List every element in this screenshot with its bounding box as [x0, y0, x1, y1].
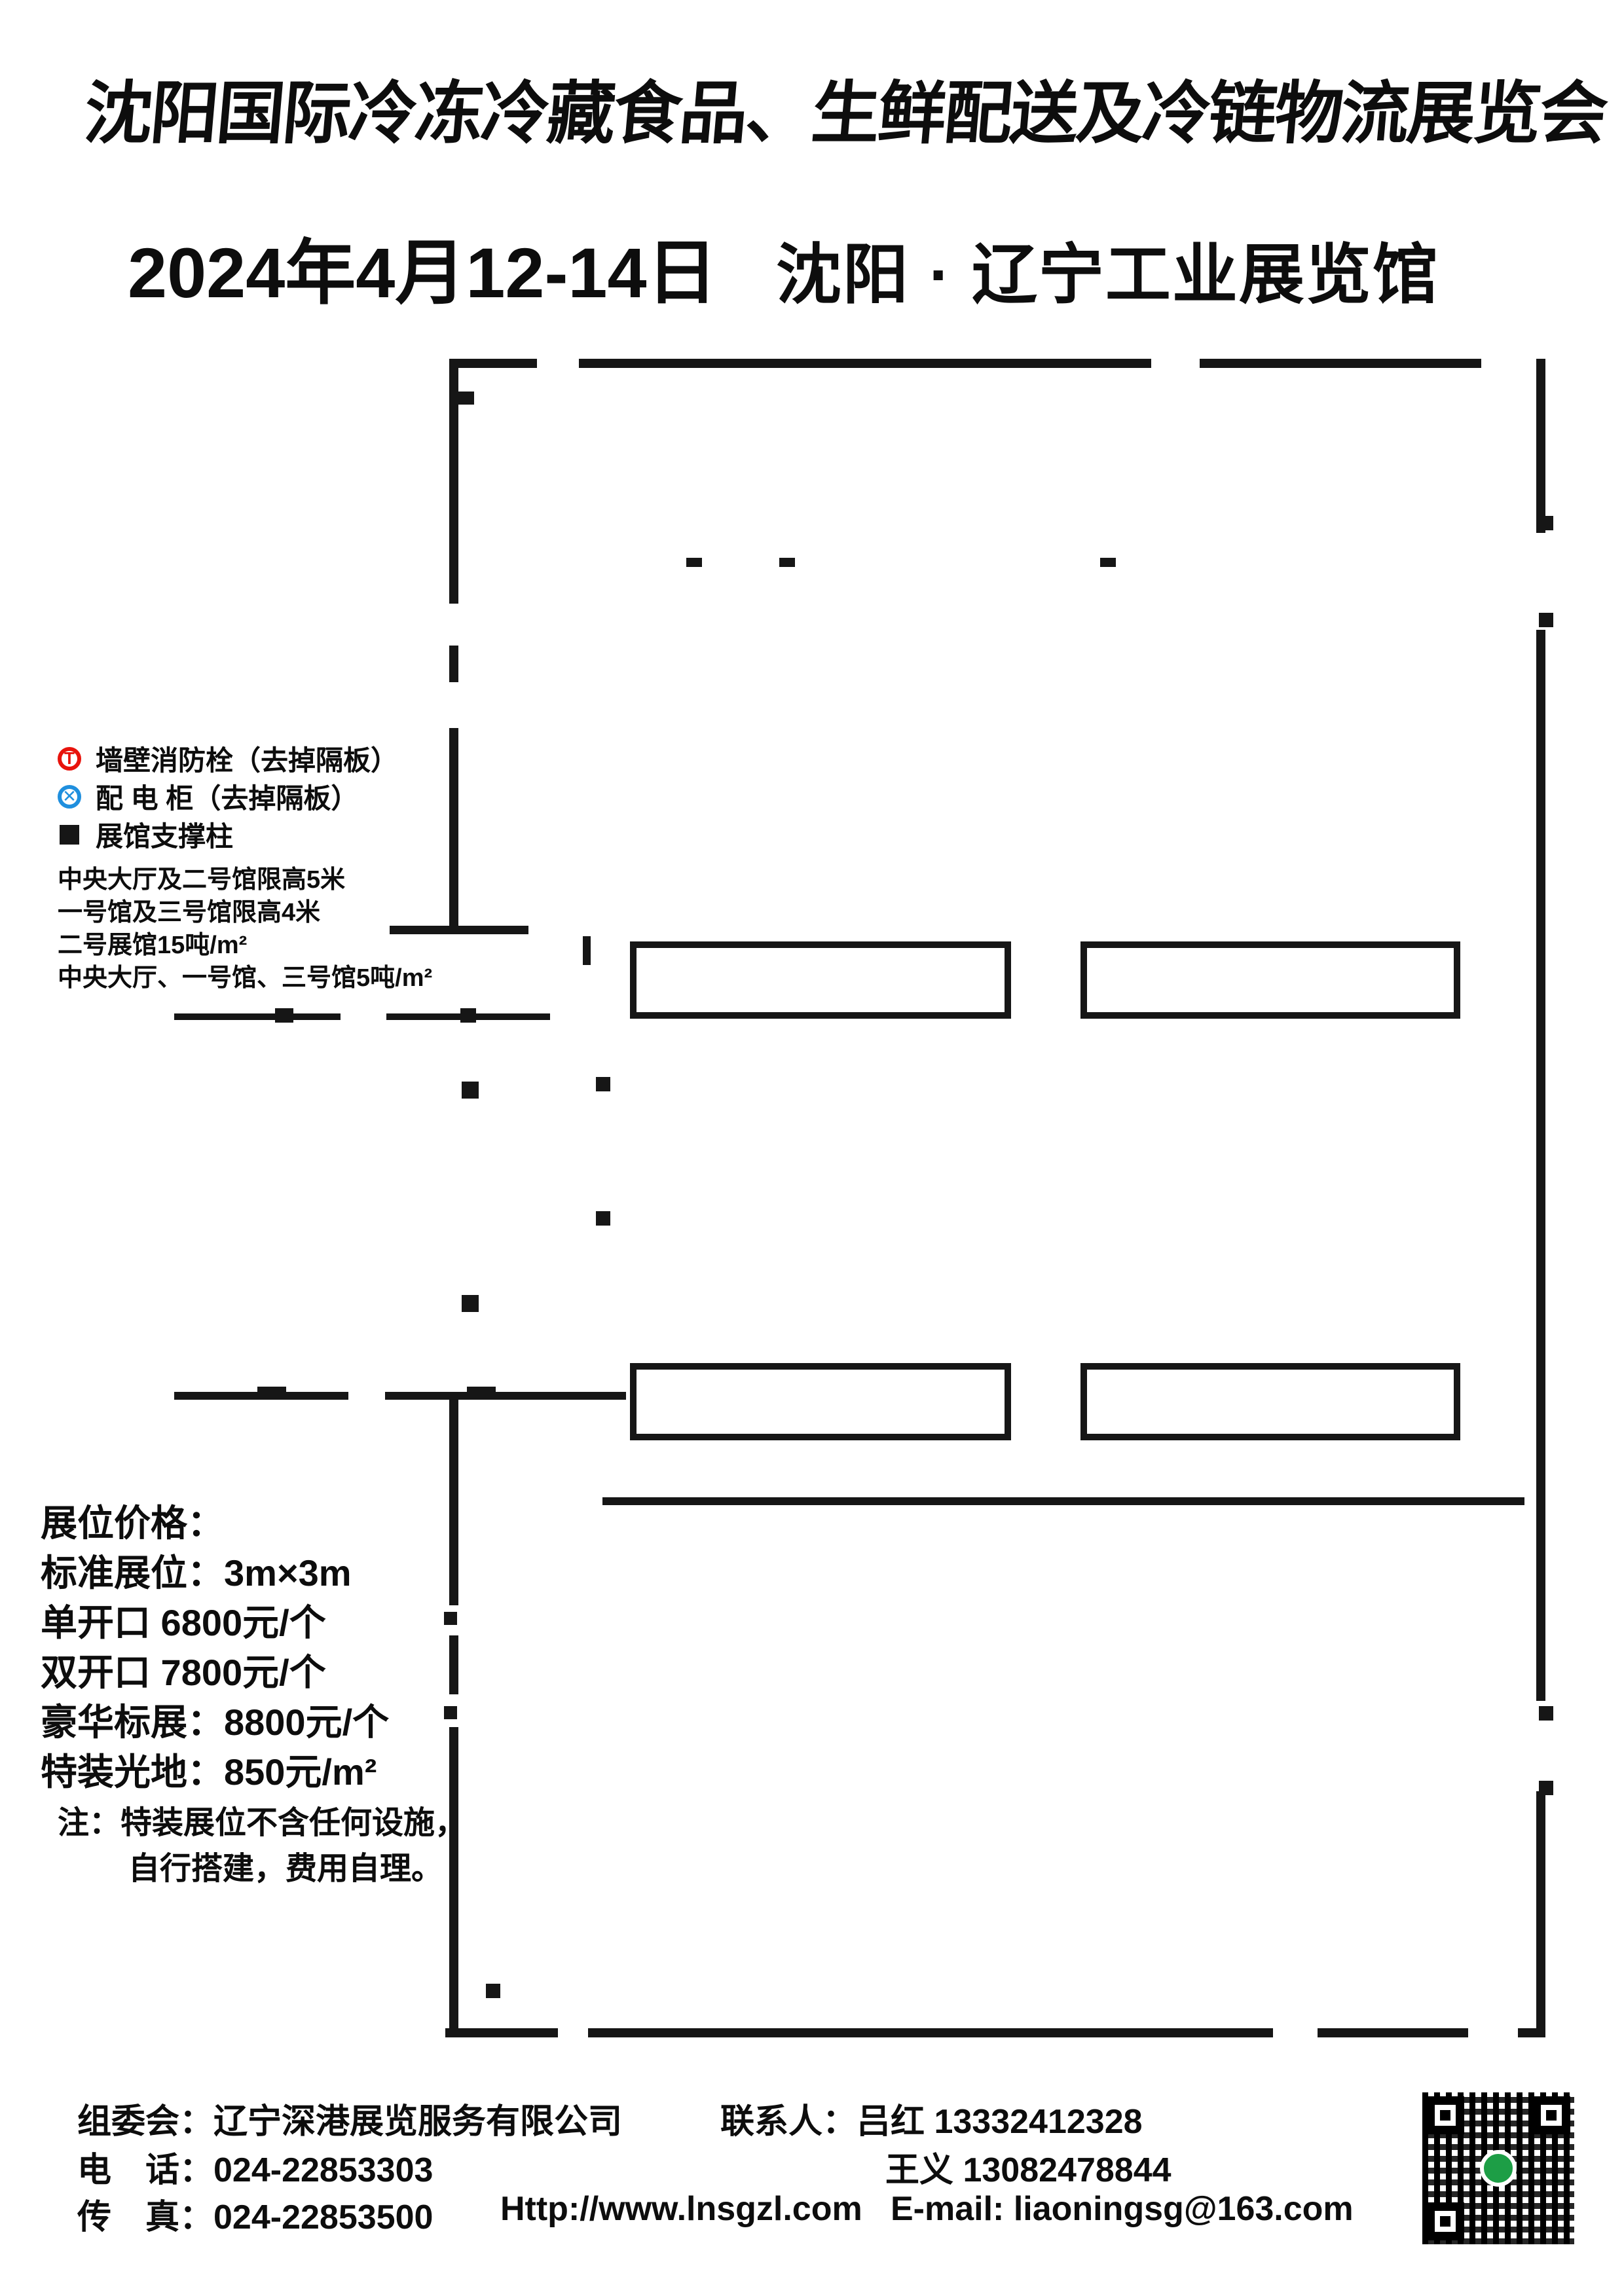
wall: [583, 936, 591, 965]
corridor-box: [1080, 941, 1460, 1019]
wall: [579, 359, 1151, 368]
power-cabinet-marker: [457, 1969, 478, 1990]
support-pillar: [779, 558, 795, 567]
corridor-box: [630, 941, 1011, 1019]
support-pillar: [462, 1295, 479, 1312]
support-pillar: [460, 1008, 476, 1023]
floor-plan: [0, 0, 1624, 2296]
wall: [1318, 2028, 1468, 2037]
support-pillar: [486, 1984, 500, 1998]
wall: [449, 728, 458, 932]
wall: [1200, 359, 1481, 368]
wall: [449, 1635, 458, 1694]
support-pillar: [275, 1008, 293, 1023]
corridor-box: [1080, 1363, 1460, 1440]
wall: [449, 359, 458, 604]
support-pillar: [596, 1077, 610, 1091]
support-pillar: [1539, 1781, 1553, 1795]
support-pillar: [1539, 613, 1553, 627]
support-pillar: [444, 1612, 457, 1625]
support-pillar: [444, 1706, 457, 1719]
wall: [174, 1013, 341, 1020]
support-pillar: [1539, 516, 1553, 530]
support-pillar: [596, 1211, 610, 1226]
corridor-box: [630, 1363, 1011, 1440]
wall: [449, 359, 537, 368]
wall: [445, 2028, 558, 2037]
wall: [449, 646, 458, 682]
wall: [602, 1497, 1524, 1505]
wall: [1518, 2028, 1545, 2037]
support-pillar: [458, 392, 474, 405]
support-pillar: [257, 1387, 286, 1400]
wall: [449, 1392, 458, 1605]
support-pillar: [467, 1387, 496, 1400]
wall: [390, 926, 528, 934]
wall: [1536, 1791, 1545, 2028]
wall: [1536, 630, 1545, 1701]
wall: [1536, 359, 1545, 533]
support-pillar: [462, 1082, 479, 1099]
wall: [385, 1392, 626, 1400]
support-pillar: [1100, 558, 1116, 567]
support-pillar: [1539, 1706, 1553, 1721]
wall: [588, 2028, 1273, 2037]
support-pillar: [686, 558, 702, 567]
